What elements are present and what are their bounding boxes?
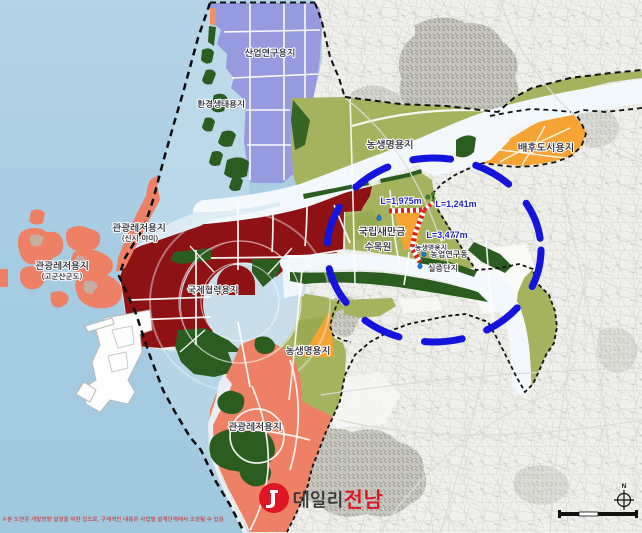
svg-text:L=1,975m: L=1,975m [380, 196, 421, 206]
svg-text:L=3,477m: L=3,477m [426, 230, 467, 240]
svg-text:L=1,241m: L=1,241m [435, 199, 476, 209]
svg-text:N: N [622, 483, 627, 490]
